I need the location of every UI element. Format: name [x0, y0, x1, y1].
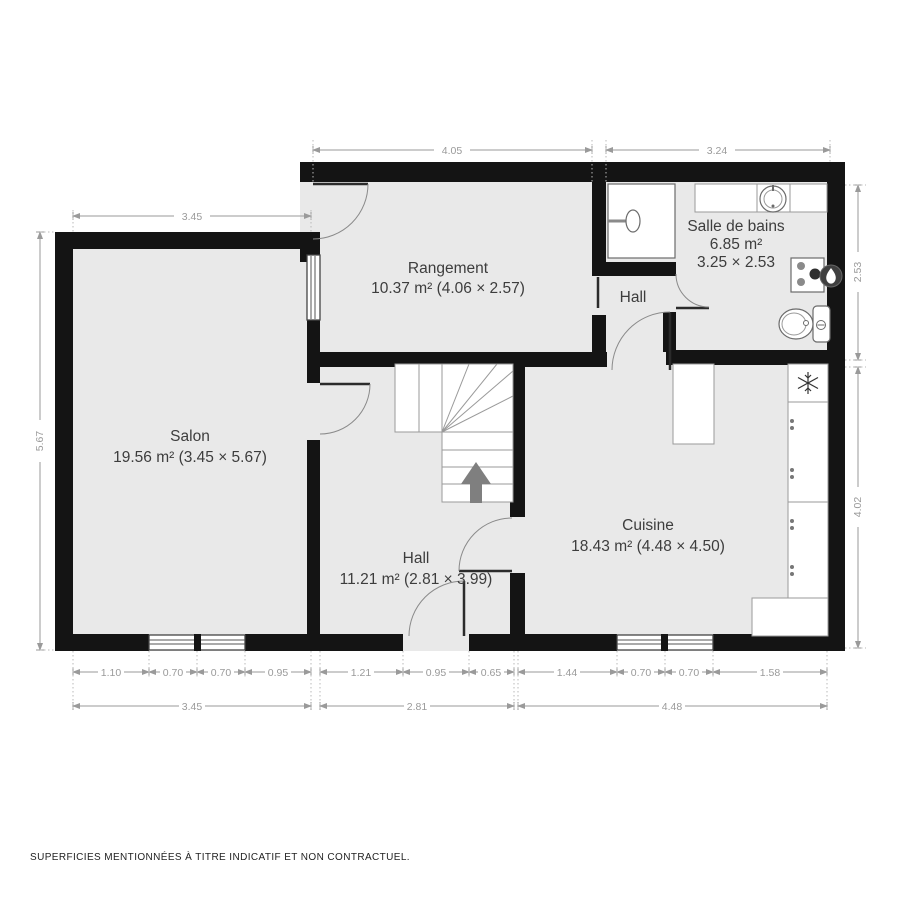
- dim-salon-top: 3.45: [182, 211, 203, 223]
- vanity-counter: [695, 184, 827, 212]
- window-salon: [149, 634, 245, 651]
- wall-salon-bottom-left: [55, 634, 149, 651]
- shower: [608, 184, 675, 258]
- dim-row1: 1.10 0.70 0.70 0.95 1.21 0.95 0.65 1.44 …: [73, 667, 827, 679]
- floor-plan-canvas: Rangement 10.37 m² (4.06 × 2.57) Salle d…: [0, 0, 900, 900]
- dim-0-95a: 0.95: [268, 667, 289, 679]
- dim-1-58: 1.58: [760, 667, 781, 679]
- label-salle-de-bains: Salle de bains: [687, 218, 785, 235]
- label-rangement-details: 10.37 m² (4.06 × 2.57): [371, 280, 525, 297]
- dim-top-right: 3.24: [707, 145, 728, 157]
- dim-1-44: 1.44: [557, 667, 578, 679]
- label-salon-details: 19.56 m² (3.45 × 5.67): [113, 449, 267, 466]
- dim-2-81: 2.81: [407, 701, 428, 713]
- dim-0-65: 0.65: [481, 667, 502, 679]
- label-hall: Hall: [403, 550, 430, 567]
- floor-plan-page: Rangement 10.37 m² (4.06 × 2.57) Salle d…: [0, 0, 900, 900]
- window-cuisine: [617, 634, 713, 651]
- label-rangement: Rangement: [408, 260, 489, 277]
- dim-0-70a: 0.70: [163, 667, 184, 679]
- label-salon: Salon: [170, 428, 210, 445]
- label-salle-de-bains-size: 3.25 × 2.53: [697, 254, 775, 271]
- dim-0-70d: 0.70: [679, 667, 700, 679]
- tall-unit: [673, 364, 714, 444]
- wall-rangement-right-b: [592, 315, 606, 352]
- label-salle-de-bains-area: 6.85 m²: [710, 236, 763, 253]
- wall-bathroom-bottom: [666, 350, 845, 365]
- wall-right-exterior: [827, 162, 845, 651]
- dim-salon-left: 5.67: [34, 431, 46, 452]
- dim-0-70b: 0.70: [211, 667, 232, 679]
- wall-hall-bottom-right: [469, 634, 514, 651]
- wall-salon-hall-c: [307, 440, 320, 651]
- wall-salon-top: [55, 232, 320, 249]
- dim-1-10: 1.10: [101, 667, 122, 679]
- toilet: [779, 306, 830, 342]
- dim-row2: 3.45 2.81 4.48: [73, 701, 827, 713]
- dim-0-95b: 0.95: [426, 667, 447, 679]
- wall-salon-hall-a: [307, 232, 320, 255]
- dim-0-70c: 0.70: [631, 667, 652, 679]
- label-cuisine: Cuisine: [622, 517, 674, 534]
- window-salon-interior: [307, 255, 320, 320]
- wall-hall-bottom-left: [307, 634, 403, 651]
- wall-rangement-right-a: [592, 182, 606, 275]
- label-hall-details: 11.21 m² (2.81 × 3.99): [340, 571, 493, 588]
- label-hall-top: Hall: [620, 289, 647, 306]
- dim-4-48: 4.48: [662, 701, 683, 713]
- wall-shower-bottom: [592, 262, 676, 276]
- wall-salon-hall-b: [307, 320, 320, 383]
- wall-cuisine-bottom-left: [514, 634, 617, 651]
- wall-top-exterior: [300, 162, 845, 182]
- dim-bath-right: 2.53: [852, 262, 864, 283]
- dim-cuisine-right: 4.02: [852, 497, 864, 518]
- dim-3-45: 3.45: [182, 701, 203, 713]
- wall-cuisine-bottom-right: [713, 634, 845, 651]
- dim-1-21: 1.21: [351, 667, 372, 679]
- dim-top-left: 4.05: [442, 145, 463, 157]
- wall-salon-left: [55, 232, 73, 651]
- label-cuisine-details: 18.43 m² (4.48 × 4.50): [571, 538, 725, 555]
- footer-disclaimer: SUPERFICIES MENTIONNÉES À TITRE INDICATI…: [30, 850, 410, 863]
- fridge: [788, 364, 828, 402]
